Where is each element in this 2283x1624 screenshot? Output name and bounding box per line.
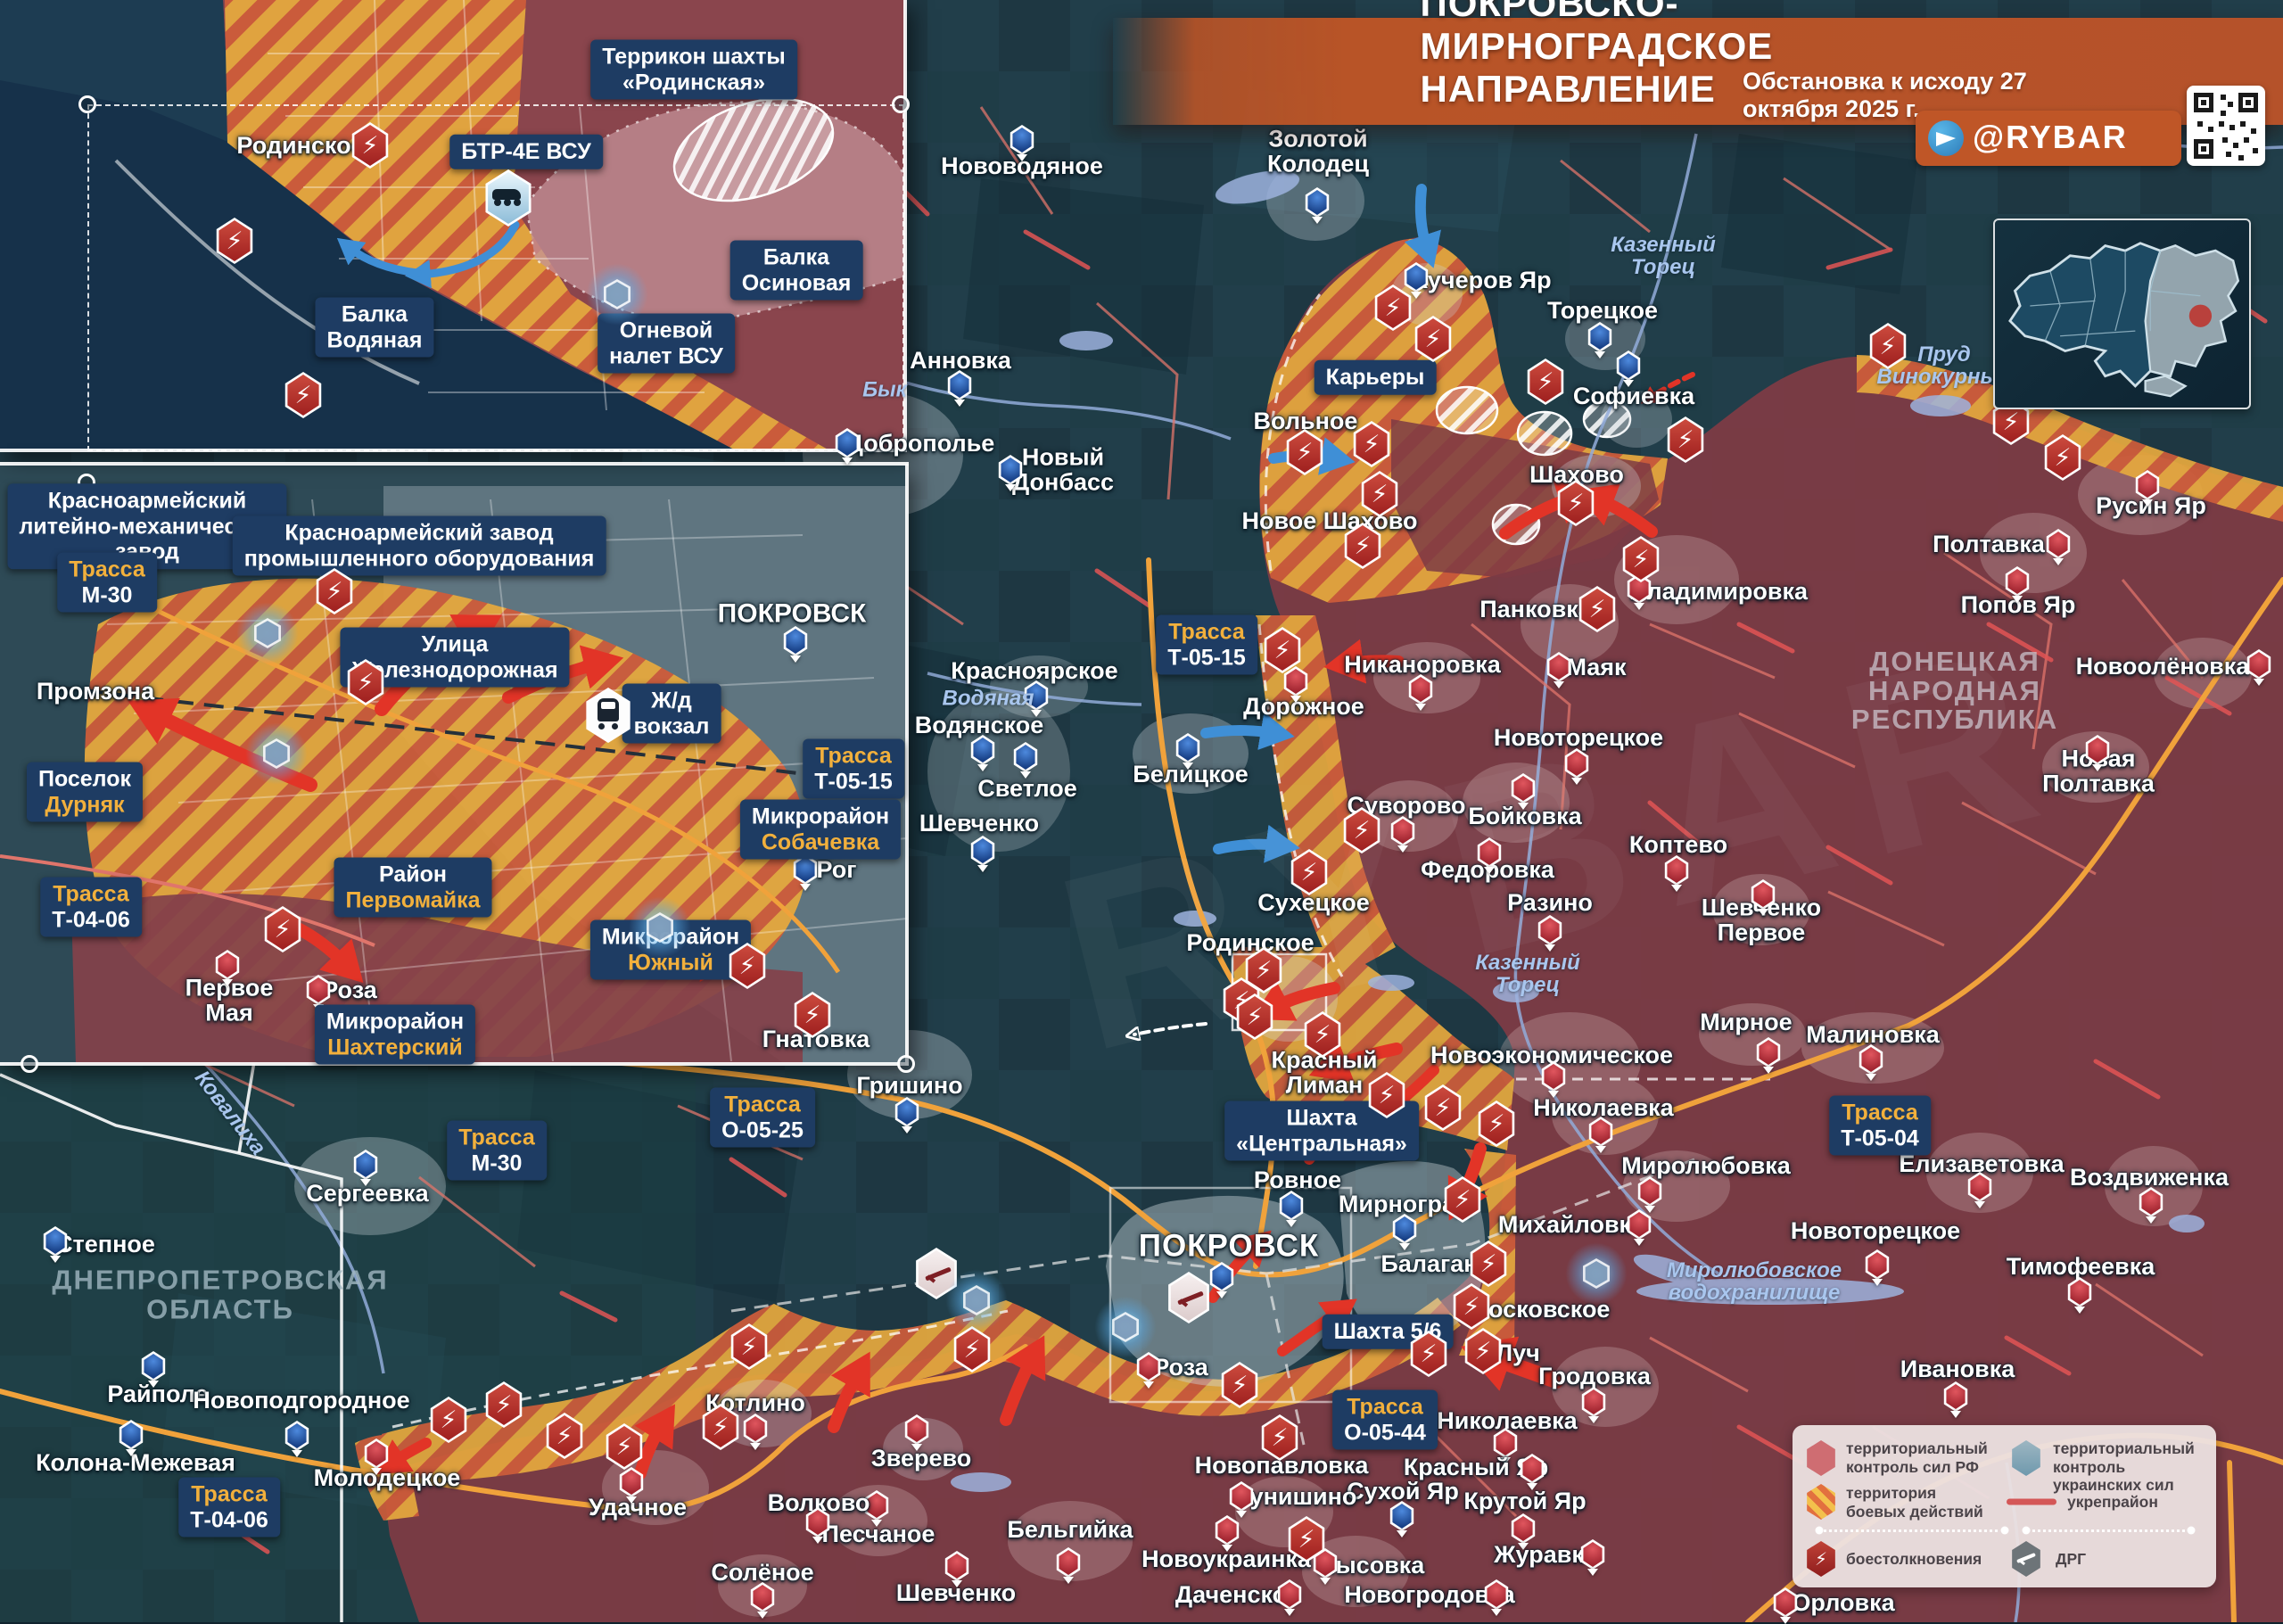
marker-pointer [1411,292,1422,299]
place-label: Роза [322,977,377,1002]
marker-pointer [1236,1511,1247,1518]
marker-pointer [1595,351,1605,359]
map-label-box: Красноармейский заводпромышленного обору… [233,516,606,576]
box-line: «Родинская» [622,70,765,95]
map-label-box: РайонПервомайка [334,858,492,918]
map-label-box: Ж/двокзал [622,684,721,744]
marker-pointer [757,1612,768,1619]
map-label-box: Террикон шахты«Родинская» [590,40,797,100]
settlement-marker-red[interactable] [1537,915,1563,945]
settlement-marker-red[interactable] [2066,1277,2093,1307]
box-line: Т-05-15 [814,769,893,794]
marker-pointer [1017,154,1027,161]
marker-pointer [1950,1411,1961,1418]
combat-marker[interactable]: ⚡ [283,372,324,418]
box-line: Трасса [1168,620,1245,645]
place-label: Малиновка [1806,1022,1940,1047]
place-label: ДОНЕЦКАЯ НАРОДНАЯ РЕСПУБЛИКА [1851,647,2058,735]
marker-pointer [911,1444,922,1451]
place-label: ПОКРОВСК [1139,1231,1319,1264]
place-label: Сухецкое [1257,890,1369,915]
map-label-box: МикрорайонСобачевка [740,800,901,860]
marker-pointer [871,1520,882,1527]
place-label: Гришино [856,1073,962,1098]
settlement-marker-blue[interactable] [946,370,973,400]
marker-pointer [1005,484,1016,491]
place-label: Новоолёновка [2076,654,2250,679]
settlement-marker-blue[interactable] [782,626,809,656]
box-line: Карьеры [1326,365,1425,390]
combat-marker[interactable]: ⚡ [729,1323,770,1370]
legend-separator [2026,1529,2191,1532]
box-line: Шахтерский [327,1035,463,1059]
legend-label: боестолкновения [1846,1550,1982,1569]
place-label: Солёное [711,1560,813,1585]
map-label-box: ТрассаТ-04-06 [40,878,142,937]
box-line: Т-04-06 [52,907,130,932]
place-label: Родинское [236,133,364,158]
strike-marker [1565,1242,1628,1305]
drg-marker[interactable] [1166,1272,1212,1323]
marker-pointer [977,865,988,872]
combat-marker[interactable]: ⚡ [214,218,255,264]
combat-marker[interactable]: ⚡ [483,1381,524,1428]
settlement-marker-blue[interactable] [284,1421,310,1451]
marker-pointer [292,1450,302,1457]
settlement-marker-red[interactable] [1510,773,1537,804]
combat-marker[interactable]: ⚡ [262,906,303,952]
box-line: Трасса [458,1125,535,1150]
place-label: Удачное [589,1495,687,1520]
settlement-marker-red[interactable] [1663,855,1690,886]
map-label-box: ТрассаМ-30 [447,1121,547,1181]
box-line: Т-04-06 [190,1507,268,1532]
settlement-marker-red[interactable] [944,1551,970,1581]
qr-code [2187,86,2265,166]
combat-marker[interactable]: ⚡ [1620,536,1661,582]
place-label: Ровное [1254,1167,1341,1192]
map-label-box: ТрассаО-05-25 [710,1088,815,1148]
box-line: Террикон шахты [602,45,786,70]
place-label: Полтавка [1933,532,2045,556]
settlement-marker-blue[interactable] [1615,350,1642,381]
settlement-marker-red[interactable] [1858,1044,1884,1075]
combat-marker[interactable]: ⚡ [1463,1328,1504,1374]
marker-pointer [790,655,801,663]
marker-pointer [2146,1216,2156,1224]
place-label: ПОКРОВСК [718,599,867,628]
strike-marker [1094,1296,1157,1358]
box-line: Дурняк [45,792,124,817]
marker-pointer [1312,217,1323,224]
marker-pointer [1780,1617,1791,1624]
map-label-box: ТрассаМ-30 [57,553,157,613]
hex-hatched-icon [1805,1484,1837,1520]
marker-pointer [1758,909,1768,916]
combat-marker[interactable]: ⚡ [350,122,391,169]
settlement-marker-blue[interactable] [118,1420,144,1450]
combat-marker[interactable]: ⚡ [544,1413,585,1459]
place-label: Новоторецкое [1791,1218,1960,1243]
settlement-marker-blue[interactable] [1009,125,1035,155]
marker-pointer [1872,1279,1883,1286]
combat-marker[interactable]: ⚡ [1413,316,1454,362]
place-label: Маяк [1566,655,1626,680]
marker-pointer [1518,803,1529,810]
box-line: О-05-44 [1344,1420,1426,1445]
box-line: Первомайка [346,887,481,912]
place-label: Доброполье [846,431,995,456]
place-label: Новоподгородное [193,1388,409,1413]
place-label: Торецкое [1547,298,1658,323]
marker-pointer [1063,1577,1074,1584]
box-line: Балка [342,302,408,327]
map-label-box: ТрассаТ-05-04 [1829,1096,1931,1156]
box-line: Трасса [191,1482,268,1507]
place-label: Панковка [1479,597,1592,622]
place-label: Анновка [910,348,1011,373]
settlement-marker-red[interactable] [2138,1187,2164,1217]
marker-pointer [902,1126,912,1134]
combat-marker[interactable]: ⚡ [1468,1241,1509,1287]
marker-pointer [360,1179,371,1186]
place-label: ДНЕПРОПЕТРОВСКАЯ ОБЛАСТЬ [52,1265,388,1323]
combat-marker[interactable]: ⚡ [1219,1362,1260,1408]
box-line: Огневой [620,318,713,343]
marker-pointer [2074,1307,2085,1314]
combat-marker[interactable]: ⚡ [952,1326,993,1373]
settlement-marker-blue[interactable] [1012,742,1039,772]
place-label: Новое Шахово [1242,508,1418,533]
marker-pointer [952,1580,962,1587]
situation-map: RYBAR НововодяноеЗолотой КолодецКучеров … [0,0,2283,1622]
place-label: Крутой Яр [1463,1488,1586,1513]
place-label: Миролюбовское водохранилище [1667,1259,1842,1304]
marker-pointer [126,1449,136,1456]
settlement-marker-blue[interactable] [1174,733,1201,763]
combat-marker[interactable]: ⚡ [1422,1084,1463,1131]
settlement-marker-red[interactable] [1055,1547,1082,1578]
box-line: М-30 [472,1150,523,1175]
marker-pointer [1020,771,1031,779]
box-line: Улица [422,632,489,657]
settlement-marker-blue[interactable] [140,1351,167,1381]
marker-pointer [1595,1146,1606,1153]
marker-pointer [1491,1609,1502,1616]
place-label: Светлое [977,776,1077,801]
combat-marker[interactable]: ⚡ [1476,1101,1517,1147]
combat-marker[interactable]: ⚡ [1577,586,1618,632]
place-label: Кучеров Яр [1413,268,1551,293]
settlement-marker-red[interactable] [1563,748,1590,779]
box-line: Собачевка [762,829,879,854]
legend-label: территориальный контроль украинских сил [2053,1439,2216,1495]
combat-marker[interactable]: ⚡ [604,1423,645,1470]
combat-marker[interactable]: ⚡ [1451,1283,1492,1330]
box-line: Красноармейский [48,488,246,513]
place-label: Коптево [1629,832,1727,857]
place-label: Луч [1496,1340,1540,1365]
strike-marker [245,722,308,785]
box-line: Трасса [1347,1395,1423,1420]
marker-pointer [1634,603,1644,610]
place-label: Владимировка [1629,579,1808,604]
box-line: Трасса [53,882,129,907]
box-line: Балка [763,245,829,270]
legend-label: территория боевых действий [1846,1484,1983,1521]
marker-pointer [1397,845,1408,853]
place-label: Софиевка [1573,383,1694,408]
place-label: Балаган [1381,1251,1478,1276]
combat-marker[interactable]: ⚡ [1262,627,1303,673]
box-line: вокзал [634,713,710,738]
marker-pointer [1222,1545,1232,1552]
map-label-box: Карьеры [1315,360,1437,395]
settlement-marker-red[interactable] [903,1414,930,1445]
combat-marker[interactable]: ⚡ [1372,284,1413,331]
strike-marker [236,602,299,664]
marker-pointer [1143,1381,1154,1389]
marker-pointer [2142,499,2153,507]
settlement-marker-red[interactable] [1510,1513,1537,1544]
place-label: Молодецкое [314,1465,461,1490]
marker-pointer [1587,1569,1598,1576]
settlement-marker-red[interactable] [1214,1515,1240,1546]
settlement-marker-blue[interactable] [969,836,996,866]
box-line: «Центральная» [1236,1131,1407,1156]
settlement-marker-red[interactable] [1864,1249,1891,1280]
settlement-marker-blue[interactable] [969,735,996,765]
map-label-box: МикрорайонШахтерский [315,1005,475,1065]
marker-pointer [750,1443,761,1450]
strike-marker [629,896,691,959]
box-line: М-30 [82,582,133,607]
marker-pointer [1216,1291,1227,1298]
marker-pointer [148,1381,159,1388]
settlement-marker-blue[interactable] [1208,1262,1235,1292]
box-line: Т-05-15 [1167,645,1246,670]
marker-pointer [1415,704,1426,711]
settlement-marker-blue[interactable] [1389,1501,1415,1531]
settlement-marker-red[interactable] [2045,529,2072,559]
place-label: Миролюбовка [1621,1153,1791,1178]
place-label: Гродовка [1538,1364,1651,1389]
marker-pointer [1554,681,1564,688]
rybar-badge[interactable]: @RYBAR [1916,111,2181,166]
combat-marker[interactable]: ⚡ [2042,434,2083,481]
marker-pointer [1571,778,1582,785]
strike-marker [945,1269,1008,1331]
box-line: Водяная [326,327,422,352]
combat-marker[interactable]: ⚡ [1284,429,1325,475]
marker-pointer [1974,1201,1985,1208]
box-line: О-05-25 [721,1117,804,1142]
legend-separator [1817,1529,2005,1532]
place-label: Михайловка [1498,1212,1644,1237]
place-label: Степное [55,1232,155,1257]
map-label-box: ТрассаТ-05-15 [1156,615,1257,675]
marker-pointer [1399,1243,1410,1250]
marker-pointer [800,884,811,891]
place-label: Новоторецкое [1494,725,1663,750]
strike-marker [586,263,648,326]
settlement-marker-blue[interactable] [1304,187,1331,218]
box-line: Микрорайон [326,1010,464,1035]
hex-blue-icon [2010,1440,2042,1476]
settlement-marker-red[interactable] [1636,1176,1663,1207]
marker-pointer [1588,1416,1599,1423]
legend-panel: территориальный контроль сил РФ территор… [1793,1425,2216,1587]
marker-pointer [812,1537,823,1544]
map-label-box: БТР-4Е ВСУ [449,135,603,169]
marker-pointer [1763,1067,1774,1074]
place-label: Орловка [1792,1590,1894,1615]
place-label: Родинское [1186,930,1314,955]
place-label: Новый Донбасс [1012,445,1114,496]
marker-pointer [50,1256,61,1263]
settlement-marker-blue[interactable] [1587,322,1613,352]
place-label: Рог [816,857,856,882]
combat-marker[interactable]: ⚡ [428,1397,469,1443]
settlement-marker-blue[interactable] [1391,1214,1418,1244]
place-label: Дорожное [1243,694,1364,719]
telegram-icon [1928,120,1964,156]
place-label: Воздвиженка [2070,1165,2229,1190]
marker-pointer [1397,1530,1407,1537]
box-line: Шахта [1286,1106,1356,1131]
place-label: Водяная [943,687,1034,709]
btr-icon [482,169,534,227]
settlement-marker-red[interactable] [1942,1381,1969,1412]
marker-pointer [1290,696,1301,703]
box-line: Поселок [38,767,131,792]
place-label: Николаевка [1533,1095,1673,1120]
marker-pointer [1671,885,1682,892]
map-label-box: ТрассаО-05-44 [1332,1390,1438,1450]
combat-marker[interactable]: ⚡ [1665,416,1706,463]
place-label: Шевченко [919,811,1039,836]
settlement-marker-blue[interactable] [1278,1191,1305,1221]
box-line: Осиновая [742,270,852,295]
settlement-marker-red[interactable] [1580,1387,1607,1417]
marker-pointer [1866,1074,1876,1081]
marker-pointer [2053,558,2064,565]
marker-pointer [2012,596,2023,603]
map-label-box: ПоселокДурняк [27,763,143,822]
marker-pointer [2254,679,2264,686]
marker-pointer [626,1496,637,1504]
map-label-box: БалкаВодяная [315,298,433,358]
marker-pointer [1286,1220,1297,1227]
place-label: Никаноровка [1344,652,1501,677]
hex-red-icon [1805,1440,1837,1476]
settlement-marker-red[interactable] [1407,674,1434,705]
marker-pointer [1634,1239,1644,1246]
marker-pointer [842,458,853,465]
place-label: Разино [1507,890,1593,915]
legend-label: ДРГ [2056,1550,2086,1569]
place-label: Бык [862,378,907,400]
rifle-hex-icon [2010,1541,2042,1577]
map-label-box: ТрассаТ-04-06 [178,1478,280,1537]
marker-pointer [2092,764,2103,771]
legend-label: укрепрайон [2067,1493,2158,1512]
lightning-hex-icon: ⚡ [1805,1541,1837,1577]
marker-pointer [222,979,233,986]
place-label: Золотой Колодец [1267,127,1369,177]
marker-pointer [977,764,988,771]
place-label: Казенный Торец [1475,952,1580,996]
place-label: Ковалиха [191,1067,270,1159]
place-label: Красноярское [951,658,1117,683]
box-line: БТР-4Е ВСУ [461,139,591,164]
legend-label: территориальный контроль сил РФ [1846,1439,1988,1476]
box-line: Трасса [815,744,892,769]
settlement-marker-red[interactable] [1755,1037,1782,1068]
marker-pointer [371,1468,382,1475]
box-line: Трасса [724,1092,801,1117]
place-label: Сухой Яр [1347,1479,1459,1504]
rybar-handle: @RYBAR [1973,119,2128,156]
marker-pointer [1284,1609,1295,1616]
settlement-marker-blue[interactable] [894,1097,920,1127]
settlement-marker-blue[interactable] [352,1150,379,1180]
place-label: Промзона [37,679,154,704]
map-label-box: ТрассаТ-05-15 [803,739,904,799]
marker-pointer [1183,763,1193,770]
combat-marker[interactable]: ⚡ [1525,359,1566,405]
marker-pointer [1320,1578,1331,1585]
place-label: Роза [1153,1355,1208,1380]
settlement-marker-red[interactable] [1389,816,1416,846]
marker-pointer [1644,1206,1655,1213]
box-line: Микрорайон [752,804,889,829]
box-line: Трасса [69,557,145,582]
box-line: промышленного оборудования [244,546,595,571]
settlement-marker-red[interactable] [1587,1117,1614,1147]
box-line: Район [379,862,447,887]
place-label: Казенный Торец [1611,234,1716,278]
place-label: Бельгийка [1007,1517,1133,1542]
ukraine-minimap [1993,218,2251,409]
marker-pointer [1623,380,1634,387]
marker-pointer [954,400,965,407]
place-label: Тимофеевка [2007,1254,2155,1279]
settlement-marker-red[interactable] [742,1414,769,1444]
labels-layer: НововодяноеЗолотой КолодецКучеров ЯрТоре… [0,0,2283,1622]
box-line: Красноармейский завод [284,521,553,546]
place-label: Водянское [915,713,1044,738]
red-line-icon [2007,1499,2056,1505]
box-line: налет ВСУ [609,343,723,368]
map-label-box: БалкаОсиновая [730,241,863,301]
box-line: Ж/д [651,688,691,713]
box-line: Трасса [1842,1101,1918,1125]
marker-pointer [1484,867,1495,874]
place-label: Мирное [1700,1010,1792,1035]
place-label: Ивановка [1900,1356,2015,1381]
box-line: Т-05-04 [1841,1125,1919,1150]
settlement-marker-red[interactable] [749,1582,776,1612]
